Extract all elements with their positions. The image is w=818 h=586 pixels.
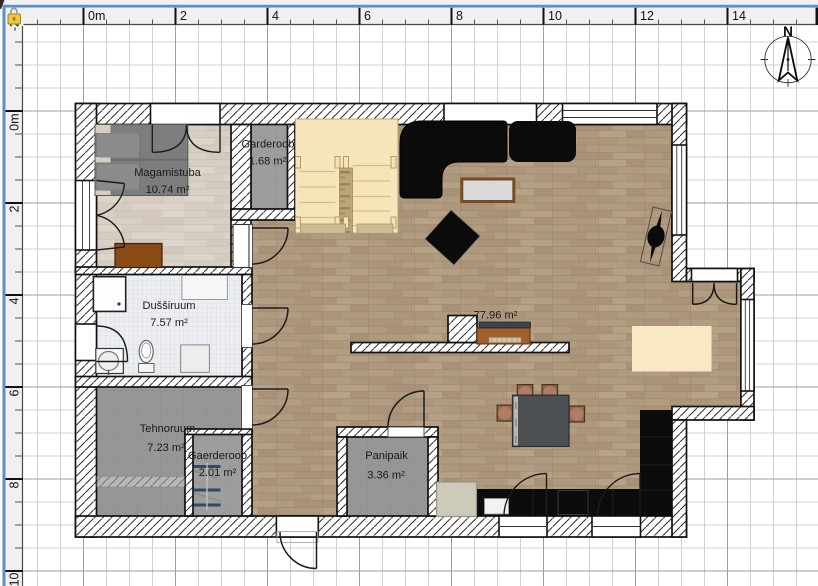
svg-text:6: 6 xyxy=(8,389,22,396)
svg-text:4: 4 xyxy=(8,297,22,304)
svg-text:1.68 m²: 1.68 m² xyxy=(249,156,287,168)
svg-text:2: 2 xyxy=(8,205,22,212)
svg-text:Panipaik: Panipaik xyxy=(365,450,408,462)
svg-text:6: 6 xyxy=(364,9,371,23)
svg-text:7.57 m²: 7.57 m² xyxy=(150,317,188,329)
svg-text:Magamistuba: Magamistuba xyxy=(134,167,201,179)
svg-text:0m: 0m xyxy=(88,9,105,23)
svg-text:3.36 m²: 3.36 m² xyxy=(367,470,405,482)
svg-text:Tehnoruum: Tehnoruum xyxy=(140,423,196,435)
svg-text:7.23 m²: 7.23 m² xyxy=(147,442,185,454)
svg-text:14: 14 xyxy=(732,9,746,23)
svg-text:12: 12 xyxy=(640,9,654,23)
svg-text:10: 10 xyxy=(548,9,562,23)
svg-text:4: 4 xyxy=(272,9,279,23)
svg-text:8: 8 xyxy=(8,481,22,488)
svg-text:10: 10 xyxy=(8,572,22,586)
svg-text:Garderoob: Garderoob xyxy=(241,139,294,151)
svg-text:Gaerderoob: Gaerderoob xyxy=(188,450,247,462)
svg-text:0m: 0m xyxy=(8,114,22,131)
svg-text:2.01 m²: 2.01 m² xyxy=(199,467,237,479)
svg-text:N: N xyxy=(783,24,793,39)
svg-text:2: 2 xyxy=(180,9,187,23)
svg-text:77.96 m²: 77.96 m² xyxy=(474,310,518,322)
svg-text:Dušširuum: Dušširuum xyxy=(142,300,195,312)
svg-text:10.74 m²: 10.74 m² xyxy=(146,184,190,196)
svg-text:8: 8 xyxy=(456,9,463,23)
